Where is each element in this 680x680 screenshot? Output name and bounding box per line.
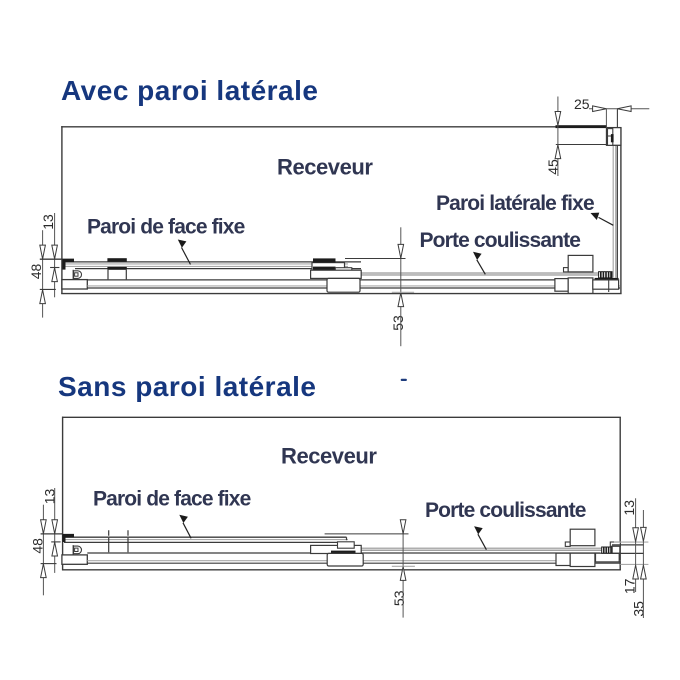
svg-text:Avec paroi latérale: Avec paroi latérale (61, 75, 318, 106)
svg-text:17: 17 (621, 578, 637, 594)
svg-text:Porte coulissante: Porte coulissante (420, 229, 581, 252)
svg-text:53: 53 (390, 315, 406, 331)
svg-text:35: 35 (631, 601, 647, 617)
svg-text:13: 13 (40, 214, 56, 230)
svg-text:Porte coulissante: Porte coulissante (425, 499, 586, 522)
svg-text:53: 53 (391, 590, 407, 606)
svg-text:Paroi de face fixe: Paroi de face fixe (93, 488, 251, 511)
svg-text:48: 48 (28, 264, 44, 280)
svg-text:Sans paroi latérale: Sans paroi latérale (58, 371, 317, 402)
svg-text:25: 25 (574, 96, 590, 112)
svg-text:Receveur: Receveur (277, 155, 373, 180)
svg-text:Paroi de face fixe: Paroi de face fixe (87, 216, 245, 239)
svg-text:13: 13 (621, 500, 637, 516)
svg-text:Paroi latérale fixe: Paroi latérale fixe (436, 192, 594, 215)
svg-text:Receveur: Receveur (281, 444, 377, 469)
